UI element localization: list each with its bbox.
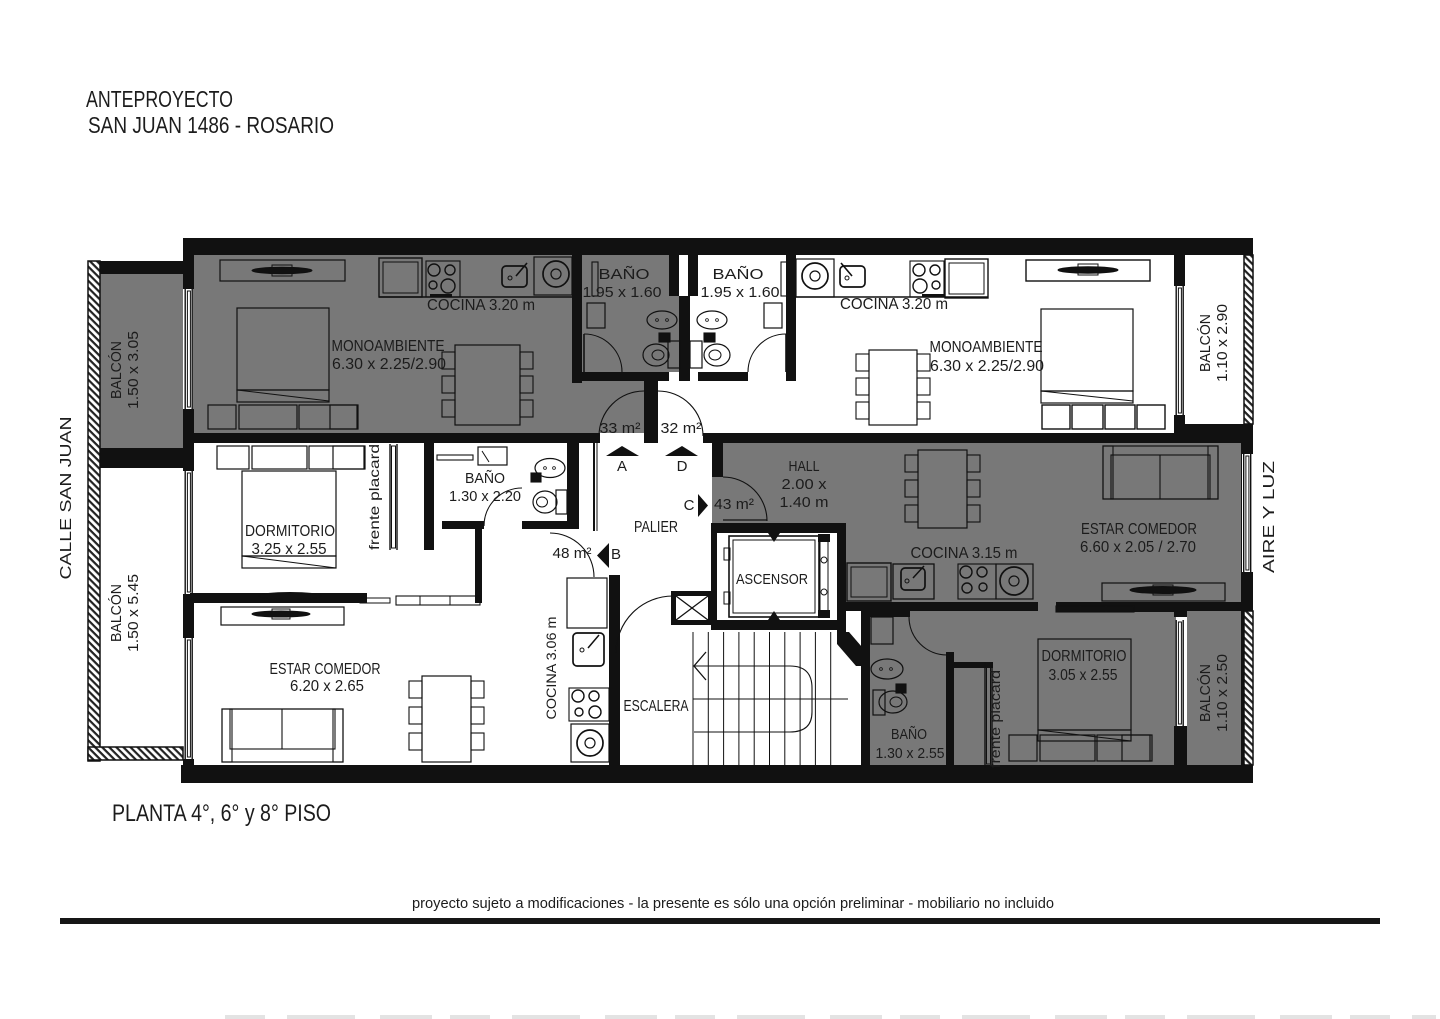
svg-text:6.20 x 2.65: 6.20 x 2.65: [290, 678, 364, 695]
svg-text:3.05 x 2.55: 3.05 x 2.55: [1049, 667, 1118, 684]
svg-text:COCINA 3.15 m: COCINA 3.15 m: [911, 545, 1018, 562]
svg-text:CALLE SAN JUAN: CALLE SAN JUAN: [58, 417, 75, 580]
svg-text:6.60 x 2.05 / 2.70: 6.60 x 2.05 / 2.70: [1080, 539, 1196, 556]
svg-text:DORMITORIO: DORMITORIO: [1042, 648, 1127, 665]
svg-text:BALCÓN: BALCÓN: [108, 341, 125, 399]
svg-text:BAÑO: BAÑO: [713, 266, 764, 283]
svg-text:ESCALERA: ESCALERA: [624, 698, 690, 715]
svg-text:1.95 x 1.60: 1.95 x 1.60: [701, 284, 780, 301]
svg-text:B: B: [611, 546, 621, 563]
svg-text:MONOAMBIENTE: MONOAMBIENTE: [930, 339, 1043, 356]
svg-text:C: C: [684, 497, 695, 514]
svg-text:ANTEPROYECTO: ANTEPROYECTO: [86, 86, 233, 112]
svg-text:43 m²: 43 m²: [714, 496, 754, 513]
svg-text:2.00 x: 2.00 x: [782, 476, 828, 493]
svg-text:PALIER: PALIER: [634, 519, 678, 536]
svg-text:DORMITORIO: DORMITORIO: [245, 523, 335, 540]
svg-text:BALCÓN: BALCÓN: [108, 584, 125, 642]
svg-text:BAÑO: BAÑO: [465, 470, 505, 487]
svg-text:A: A: [617, 458, 627, 475]
svg-text:1.30 x 2.20: 1.30 x 2.20: [449, 489, 521, 505]
svg-text:33 m²: 33 m²: [600, 420, 641, 437]
svg-text:32 m²: 32 m²: [661, 420, 702, 437]
svg-text:BALCÓN: BALCÓN: [1197, 664, 1214, 722]
svg-text:AIRE Y LUZ: AIRE Y LUZ: [1261, 461, 1278, 573]
svg-text:D: D: [677, 458, 688, 475]
svg-text:COCINA 3.20 m: COCINA 3.20 m: [427, 297, 535, 314]
svg-text:1.10 x 2.90: 1.10 x 2.90: [1214, 304, 1231, 382]
svg-text:proyecto sujeto a modificacion: proyecto sujeto a modificaciones - la pr…: [412, 895, 1054, 912]
svg-text:6.30 x 2.25/2.90: 6.30 x 2.25/2.90: [332, 356, 446, 373]
svg-text:COCINA 3.06 m: COCINA 3.06 m: [543, 617, 559, 720]
svg-text:1.40 m: 1.40 m: [780, 494, 829, 511]
svg-text:COCINA 3.20 m: COCINA 3.20 m: [840, 296, 948, 313]
svg-text:BAÑO: BAÑO: [891, 726, 927, 743]
svg-text:ESTAR COMEDOR: ESTAR COMEDOR: [270, 661, 381, 678]
svg-text:1.50 x 5.45: 1.50 x 5.45: [125, 574, 142, 652]
svg-text:3.25 x 2.55: 3.25 x 2.55: [252, 541, 327, 558]
svg-text:ASCENSOR: ASCENSOR: [736, 572, 808, 588]
svg-text:1.95 x 1.60: 1.95 x 1.60: [583, 284, 662, 301]
svg-text:frente placard: frente placard: [366, 444, 382, 550]
svg-text:BAÑO: BAÑO: [599, 266, 650, 283]
svg-text:6.30 x 2.25/2.90: 6.30 x 2.25/2.90: [930, 358, 1044, 375]
svg-text:HALL: HALL: [789, 458, 820, 475]
svg-text:PLANTA 4°, 6° y 8° PISO: PLANTA 4°, 6° y 8° PISO: [112, 800, 331, 827]
svg-text:BALCÓN: BALCÓN: [1197, 314, 1214, 372]
svg-text:1.30 x 2.55: 1.30 x 2.55: [876, 746, 945, 762]
svg-text:MONOAMBIENTE: MONOAMBIENTE: [332, 338, 445, 355]
svg-text:48 m²: 48 m²: [553, 545, 592, 562]
svg-text:ESTAR COMEDOR: ESTAR COMEDOR: [1081, 521, 1197, 538]
svg-text:1.50 x 3.05: 1.50 x 3.05: [125, 331, 142, 409]
svg-text:frente placard: frente placard: [987, 670, 1003, 768]
svg-text:SAN JUAN 1486 - ROSARIO: SAN JUAN 1486 - ROSARIO: [88, 112, 334, 138]
svg-text:1.10 x 2.50: 1.10 x 2.50: [1214, 654, 1231, 732]
